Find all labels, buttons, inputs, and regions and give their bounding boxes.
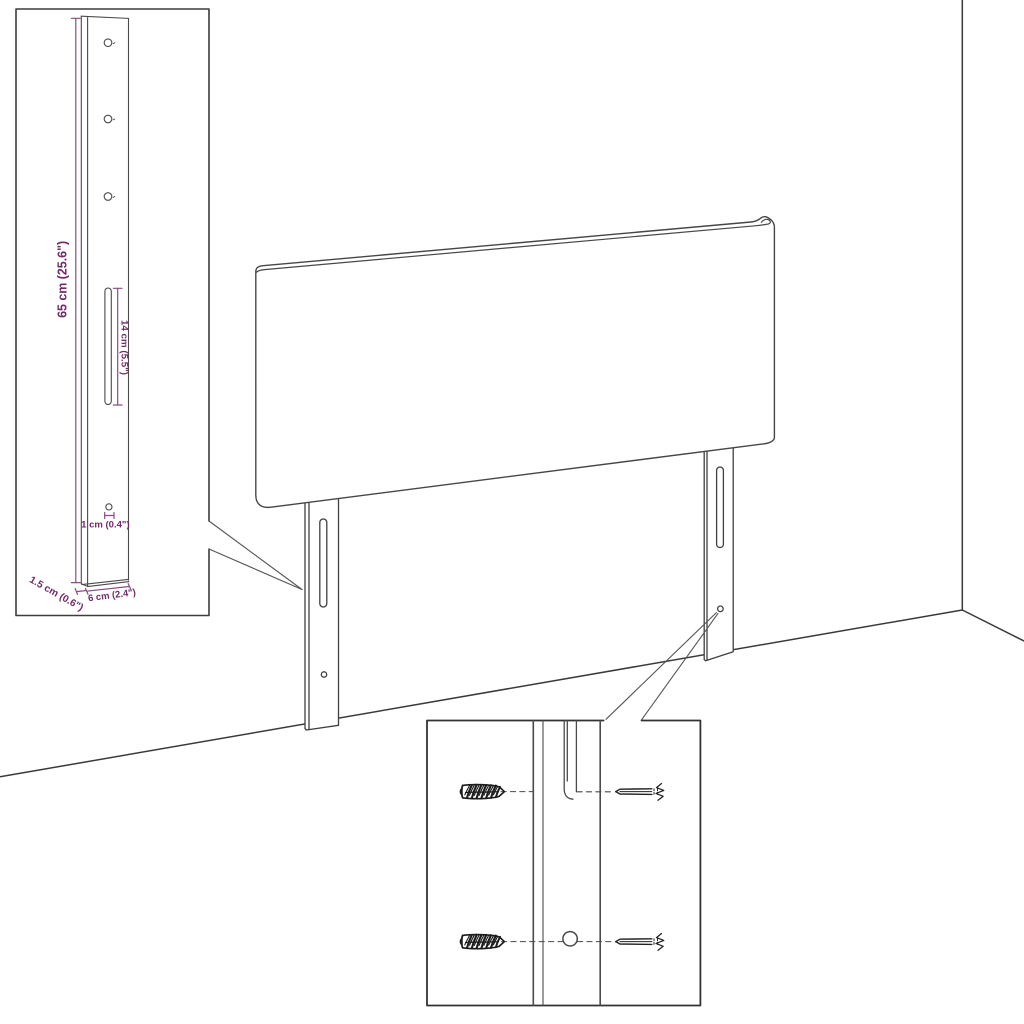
- svg-text:14 cm (5.5"): 14 cm (5.5"): [120, 320, 130, 375]
- svg-text:1 cm (0.4"): 1 cm (0.4"): [81, 520, 130, 531]
- svg-text:65 cm (25.6"): 65 cm (25.6"): [56, 241, 70, 318]
